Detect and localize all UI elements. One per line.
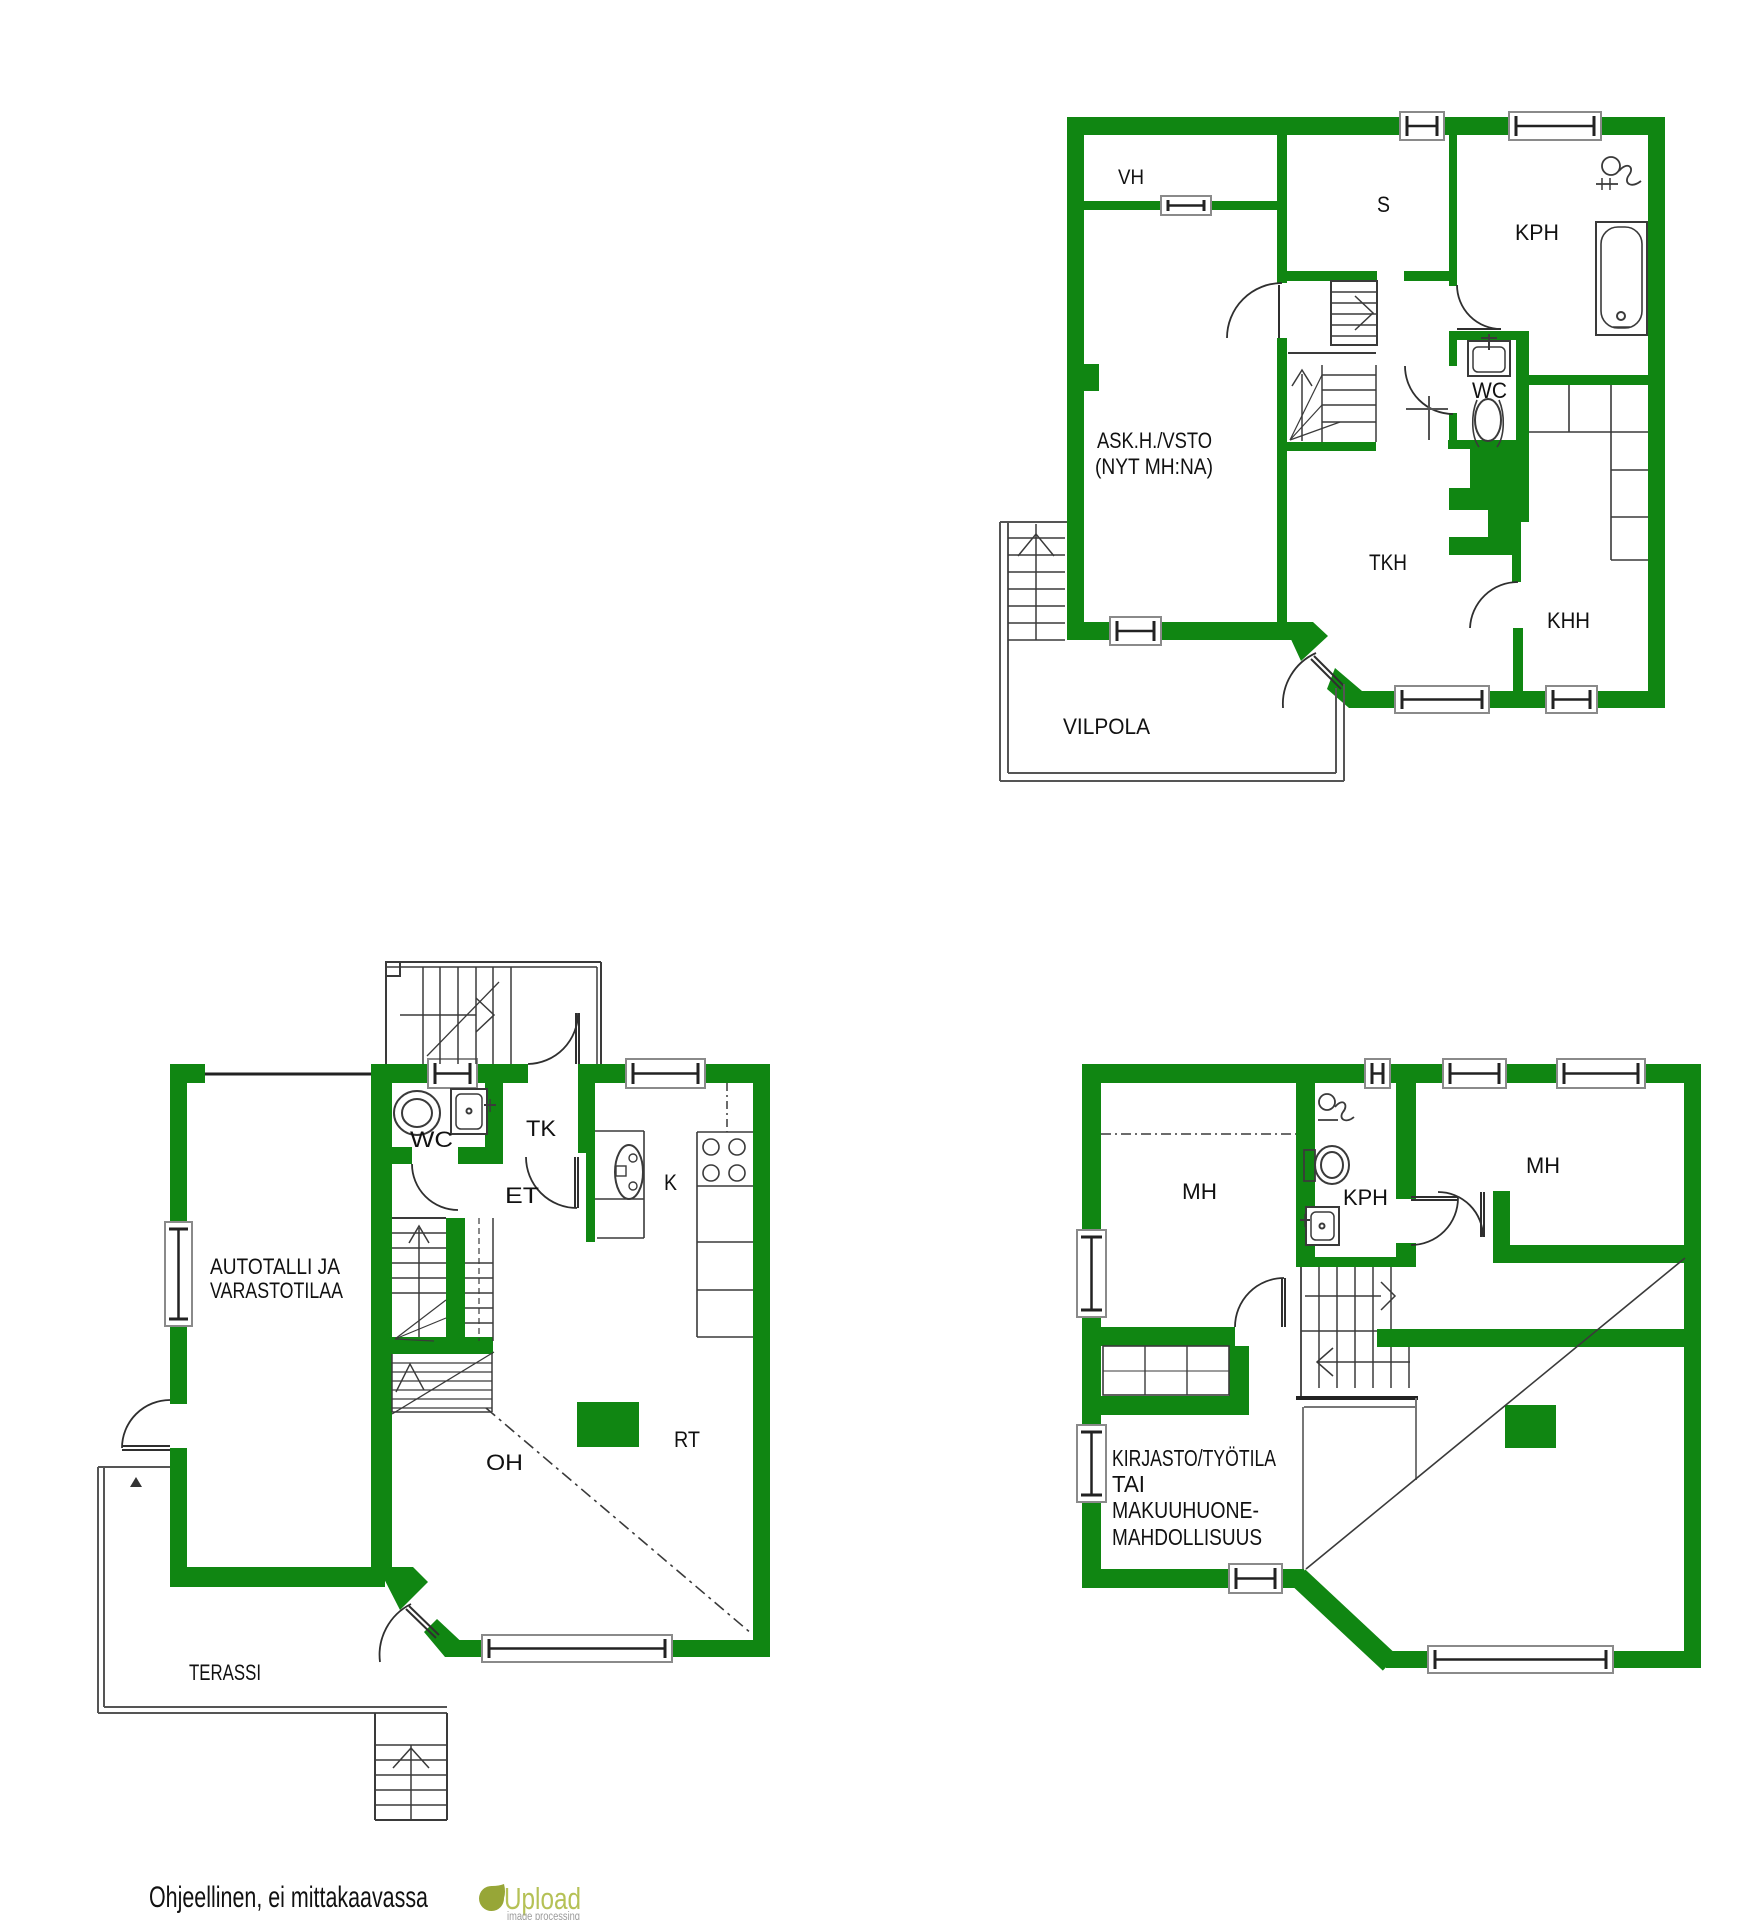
svg-text:KPH: KPH bbox=[1515, 220, 1559, 245]
svg-text:MAHDOLLISUUS: MAHDOLLISUUS bbox=[1112, 1524, 1262, 1550]
svg-text:K: K bbox=[664, 1170, 677, 1195]
svg-text:(NYT MH:NA): (NYT MH:NA) bbox=[1095, 454, 1213, 479]
svg-text:S: S bbox=[1377, 192, 1390, 217]
svg-text:TK: TK bbox=[526, 1116, 556, 1141]
svg-text:AUTOTALLI JA: AUTOTALLI JA bbox=[210, 1254, 340, 1279]
svg-text:MH: MH bbox=[1182, 1179, 1217, 1204]
svg-text:RT: RT bbox=[674, 1427, 700, 1452]
svg-text:Ohjeellinen, ei mittakaavassa: Ohjeellinen, ei mittakaavassa bbox=[149, 1881, 428, 1914]
svg-text:WC: WC bbox=[410, 1127, 453, 1152]
svg-text:ASK.H./VSTO: ASK.H./VSTO bbox=[1097, 428, 1212, 453]
svg-text:TERASSI: TERASSI bbox=[189, 1660, 261, 1685]
svg-text:VARASTOTILAA: VARASTOTILAA bbox=[210, 1278, 343, 1303]
svg-text:VILPOLA: VILPOLA bbox=[1063, 714, 1150, 739]
svg-text:OH: OH bbox=[486, 1450, 523, 1475]
svg-text:TKH: TKH bbox=[1369, 550, 1407, 575]
svg-text:KPH: KPH bbox=[1343, 1185, 1388, 1210]
svg-text:image processing: image processing bbox=[507, 1911, 580, 1920]
svg-text:MAKUUHUONE-: MAKUUHUONE- bbox=[1112, 1497, 1259, 1523]
svg-text:VH: VH bbox=[1118, 166, 1144, 189]
svg-text:WC: WC bbox=[1472, 378, 1507, 403]
svg-text:KHH: KHH bbox=[1547, 608, 1590, 633]
svg-text:MH: MH bbox=[1526, 1153, 1560, 1178]
svg-text:ET: ET bbox=[505, 1183, 539, 1208]
svg-text:KIRJASTO/TYÖTILA: KIRJASTO/TYÖTILA bbox=[1112, 1445, 1276, 1471]
svg-text:TAI: TAI bbox=[1112, 1471, 1145, 1497]
